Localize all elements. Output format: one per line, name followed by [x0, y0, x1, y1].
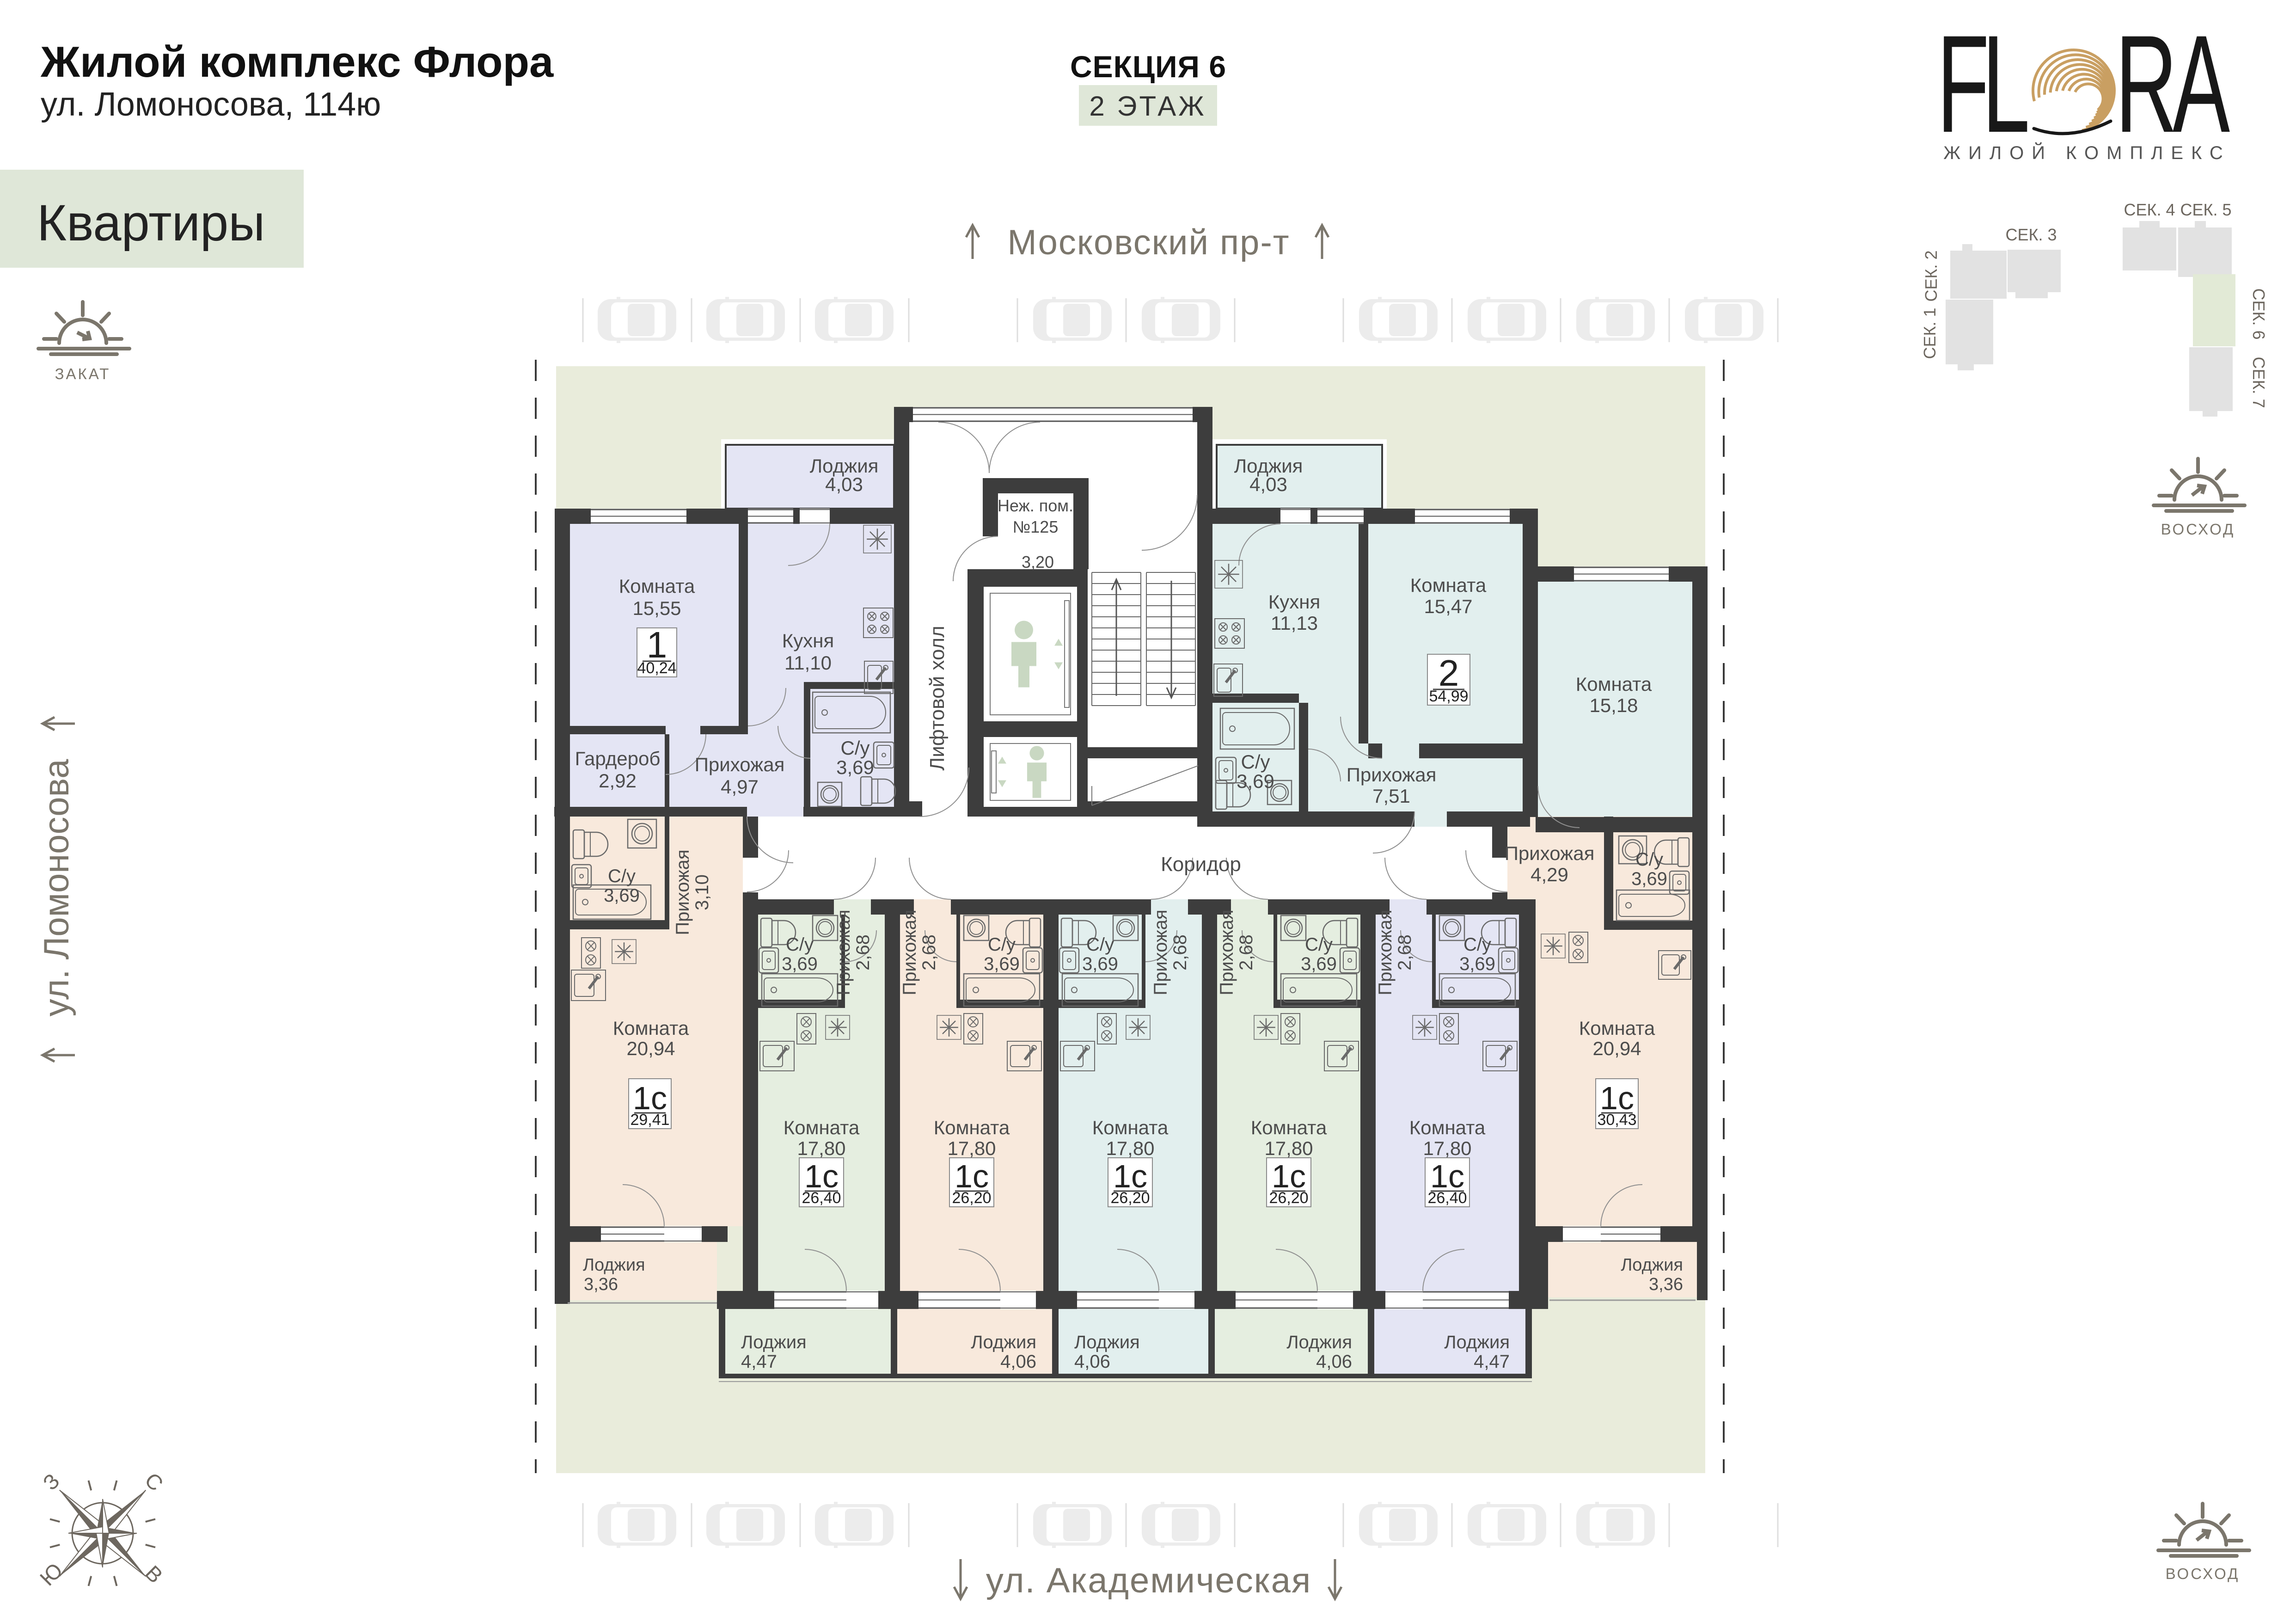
svg-text:26,20: 26,20 — [952, 1189, 991, 1207]
svg-text:Московский пр-т: Московский пр-т — [1007, 223, 1290, 262]
svg-text:29,41: 29,41 — [630, 1111, 669, 1129]
svg-text:Прихожая: Прихожая — [695, 754, 785, 775]
svg-text:Жилой комплекс Флора: Жилой комплекс Флора — [40, 37, 554, 86]
svg-text:3,69: 3,69 — [1631, 869, 1667, 889]
svg-text:Прихожая: Прихожая — [900, 909, 920, 995]
svg-text:3,69: 3,69 — [1301, 954, 1337, 974]
svg-text:3,69: 3,69 — [782, 954, 818, 974]
svg-text:4,06: 4,06 — [1074, 1352, 1110, 1372]
svg-text:30,43: 30,43 — [1597, 1111, 1636, 1129]
svg-text:4,47: 4,47 — [1474, 1352, 1510, 1372]
svg-text:2,92: 2,92 — [599, 770, 637, 792]
svg-text:15,47: 15,47 — [1424, 596, 1472, 617]
svg-text:11,10: 11,10 — [784, 652, 832, 674]
svg-text:Лоджия: Лоджия — [741, 1332, 807, 1352]
svg-text:26,20: 26,20 — [1269, 1189, 1308, 1207]
svg-text:11,13: 11,13 — [1271, 612, 1318, 634]
svg-text:17,80: 17,80 — [797, 1137, 845, 1159]
svg-text:2 ЭТАЖ: 2 ЭТАЖ — [1089, 91, 1206, 122]
svg-text:Лоджия: Лоджия — [1286, 1332, 1352, 1352]
svg-text:Кухня: Кухня — [1268, 591, 1320, 613]
svg-text:С/у: С/у — [1635, 849, 1663, 870]
svg-text:Прихожая: Прихожая — [833, 909, 854, 995]
svg-text:Кухня: Кухня — [782, 630, 834, 651]
svg-text:Лоджия: Лоджия — [1444, 1332, 1510, 1352]
svg-text:Лоджия: Лоджия — [971, 1332, 1036, 1352]
svg-text:4,97: 4,97 — [721, 776, 759, 798]
svg-text:С/у: С/у — [988, 934, 1016, 955]
svg-text:СЕК. 3: СЕК. 3 — [2005, 225, 2057, 244]
svg-text:3,69: 3,69 — [836, 756, 874, 778]
svg-text:СЕК. 7: СЕК. 7 — [2249, 356, 2268, 408]
svg-text:4,47: 4,47 — [741, 1352, 777, 1372]
svg-text:Лоджия: Лоджия — [583, 1255, 645, 1275]
svg-text:Комната: Комната — [1579, 1017, 1655, 1039]
svg-text:4,29: 4,29 — [1531, 864, 1568, 885]
svg-text:26,40: 26,40 — [802, 1189, 841, 1207]
svg-text:Комната: Комната — [1576, 673, 1652, 695]
svg-text:17,80: 17,80 — [1106, 1137, 1154, 1159]
svg-text:Комната: Комната — [1092, 1117, 1169, 1138]
svg-text:2,68: 2,68 — [1236, 934, 1256, 971]
svg-text:3,69: 3,69 — [984, 954, 1020, 974]
svg-text:Лифтовой холл: Лифтовой холл — [926, 626, 949, 770]
svg-text:3,69: 3,69 — [1237, 770, 1274, 792]
svg-text:Комната: Комната — [619, 575, 695, 597]
svg-text:L: L — [1982, 6, 2030, 161]
svg-text:Комната: Комната — [784, 1117, 860, 1138]
svg-text:40,24: 40,24 — [637, 659, 676, 677]
svg-text:20,94: 20,94 — [1592, 1038, 1641, 1059]
svg-text:F: F — [1937, 6, 1990, 161]
svg-text:2,68: 2,68 — [1395, 934, 1415, 971]
svg-text:20,94: 20,94 — [626, 1038, 675, 1059]
svg-text:ул. Ломоносова, 114ю: ул. Ломоносова, 114ю — [41, 86, 381, 123]
svg-text:Лоджия: Лоджия — [1621, 1255, 1683, 1275]
svg-text:26,20: 26,20 — [1110, 1189, 1150, 1207]
svg-text:СЕК. 5: СЕК. 5 — [2180, 200, 2231, 219]
svg-text:3,36: 3,36 — [584, 1275, 618, 1294]
svg-text:Прихожая: Прихожая — [1217, 909, 1237, 995]
svg-text:2,68: 2,68 — [853, 934, 873, 971]
svg-text:СЕК. 6: СЕК. 6 — [2249, 288, 2268, 339]
svg-text:С/у: С/у — [786, 934, 814, 955]
svg-text:4,03: 4,03 — [825, 473, 863, 495]
svg-text:С/у: С/у — [1241, 751, 1270, 773]
svg-text:Комната: Комната — [613, 1017, 689, 1039]
svg-text:СЕК. 1: СЕК. 1 — [1920, 307, 1939, 359]
svg-text:3,20: 3,20 — [1022, 553, 1054, 571]
svg-text:54,99: 54,99 — [1429, 688, 1468, 705]
svg-text:3,69: 3,69 — [604, 885, 640, 906]
svg-text:17,80: 17,80 — [1264, 1137, 1313, 1159]
svg-text:2,68: 2,68 — [919, 934, 939, 971]
svg-text:Прихожая: Прихожая — [1347, 764, 1437, 786]
svg-text:17,80: 17,80 — [1423, 1137, 1471, 1159]
svg-text:Неж. пом.: Неж. пом. — [998, 496, 1073, 515]
svg-text:4,06: 4,06 — [1000, 1352, 1036, 1372]
svg-text:3,69: 3,69 — [1082, 954, 1118, 974]
svg-text:R: R — [2115, 6, 2177, 161]
svg-text:3,36: 3,36 — [1649, 1275, 1683, 1294]
svg-text:Комната: Комната — [1409, 1117, 1486, 1138]
svg-text:26,40: 26,40 — [1427, 1189, 1467, 1207]
svg-text:15,18: 15,18 — [1589, 694, 1638, 716]
svg-text:ул. Ломоносова: ул. Ломоносова — [37, 759, 76, 1016]
svg-text:3,10: 3,10 — [692, 874, 712, 910]
svg-text:СЕК. 4: СЕК. 4 — [2124, 200, 2175, 219]
svg-text:17,80: 17,80 — [947, 1137, 996, 1159]
svg-text:Лоджия: Лоджия — [1074, 1332, 1140, 1352]
svg-text:Квартиры: Квартиры — [37, 195, 265, 252]
svg-text:Гардероб: Гардероб — [575, 748, 661, 769]
svg-text:С/у: С/у — [841, 737, 870, 759]
svg-text:ул. Академическая: ул. Академическая — [986, 1561, 1311, 1600]
svg-text:С/у: С/у — [608, 866, 636, 886]
svg-text:4,03: 4,03 — [1249, 473, 1287, 495]
svg-text:Прихожая: Прихожая — [1505, 842, 1595, 864]
svg-text:15,55: 15,55 — [632, 597, 681, 619]
svg-text:С/у: С/у — [1463, 934, 1491, 955]
svg-text:3,69: 3,69 — [1459, 954, 1495, 974]
svg-text:7,51: 7,51 — [1372, 785, 1410, 807]
svg-text:СЕКЦИЯ 6: СЕКЦИЯ 6 — [1070, 49, 1226, 84]
svg-text:Комната: Комната — [1410, 574, 1487, 596]
svg-text:Комната: Комната — [934, 1117, 1010, 1138]
svg-text:4,06: 4,06 — [1316, 1352, 1352, 1372]
svg-text:Прихожая: Прихожая — [1375, 909, 1396, 995]
svg-text:С/у: С/у — [1305, 934, 1333, 955]
svg-text:ЗАКАТ: ЗАКАТ — [55, 365, 111, 382]
svg-text:№125: №125 — [1013, 517, 1059, 536]
svg-text:Комната: Комната — [1251, 1117, 1327, 1138]
svg-text:ЖИЛОЙ КОМПЛЕКС: ЖИЛОЙ КОМПЛЕКС — [1943, 142, 2231, 163]
svg-text:A: A — [2173, 6, 2230, 161]
svg-text:2,68: 2,68 — [1170, 934, 1190, 971]
svg-text:ВОСХОД: ВОСХОД — [2166, 1565, 2240, 1582]
svg-text:СЕК. 2: СЕК. 2 — [1922, 250, 1941, 301]
svg-text:Прихожая: Прихожая — [673, 849, 693, 935]
svg-text:Прихожая: Прихожая — [1151, 909, 1171, 995]
svg-text:Коридор: Коридор — [1161, 853, 1241, 876]
svg-text:С/у: С/у — [1086, 934, 1114, 955]
svg-text:ВОСХОД: ВОСХОД — [2161, 521, 2235, 538]
